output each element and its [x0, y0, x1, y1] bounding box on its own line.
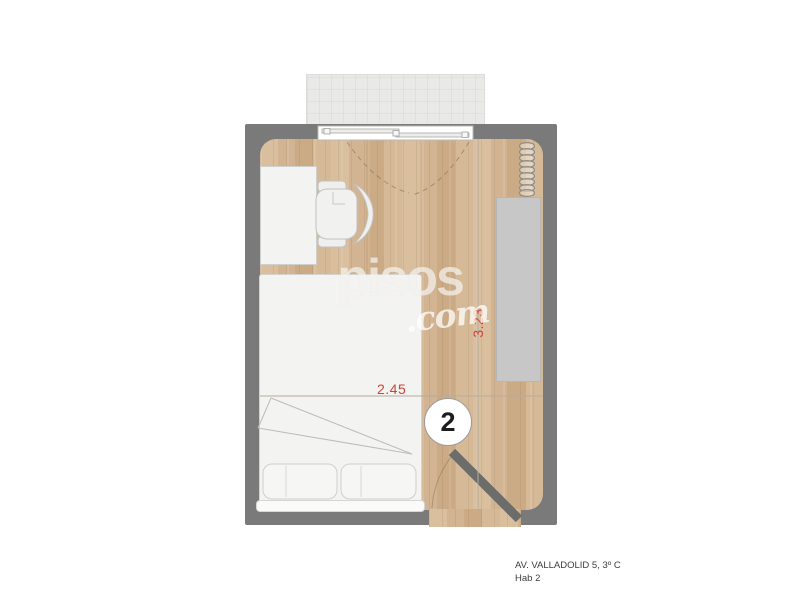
caption-address: AV. VALLADOLID 5, 3º C	[515, 559, 621, 572]
office-chair	[316, 181, 373, 247]
door-icon	[432, 451, 519, 519]
floorplan-canvas: 2.45 3.23 2 pisos .com AV. VALLADOLID 5,…	[0, 0, 800, 600]
pillows	[263, 464, 416, 499]
caption-room: Hab 2	[515, 572, 621, 585]
room-number-badge: 2	[424, 398, 472, 446]
plan-caption: AV. VALLADOLID 5, 3º C Hab 2	[515, 559, 621, 585]
watermark-brand: pisos	[250, 252, 550, 304]
window-icon	[318, 126, 473, 140]
radiator-icon	[520, 143, 535, 197]
width-dimension-label: 2.45	[377, 381, 406, 397]
bed-fold-lines	[258, 398, 412, 454]
window-swing-arcs	[347, 142, 469, 195]
